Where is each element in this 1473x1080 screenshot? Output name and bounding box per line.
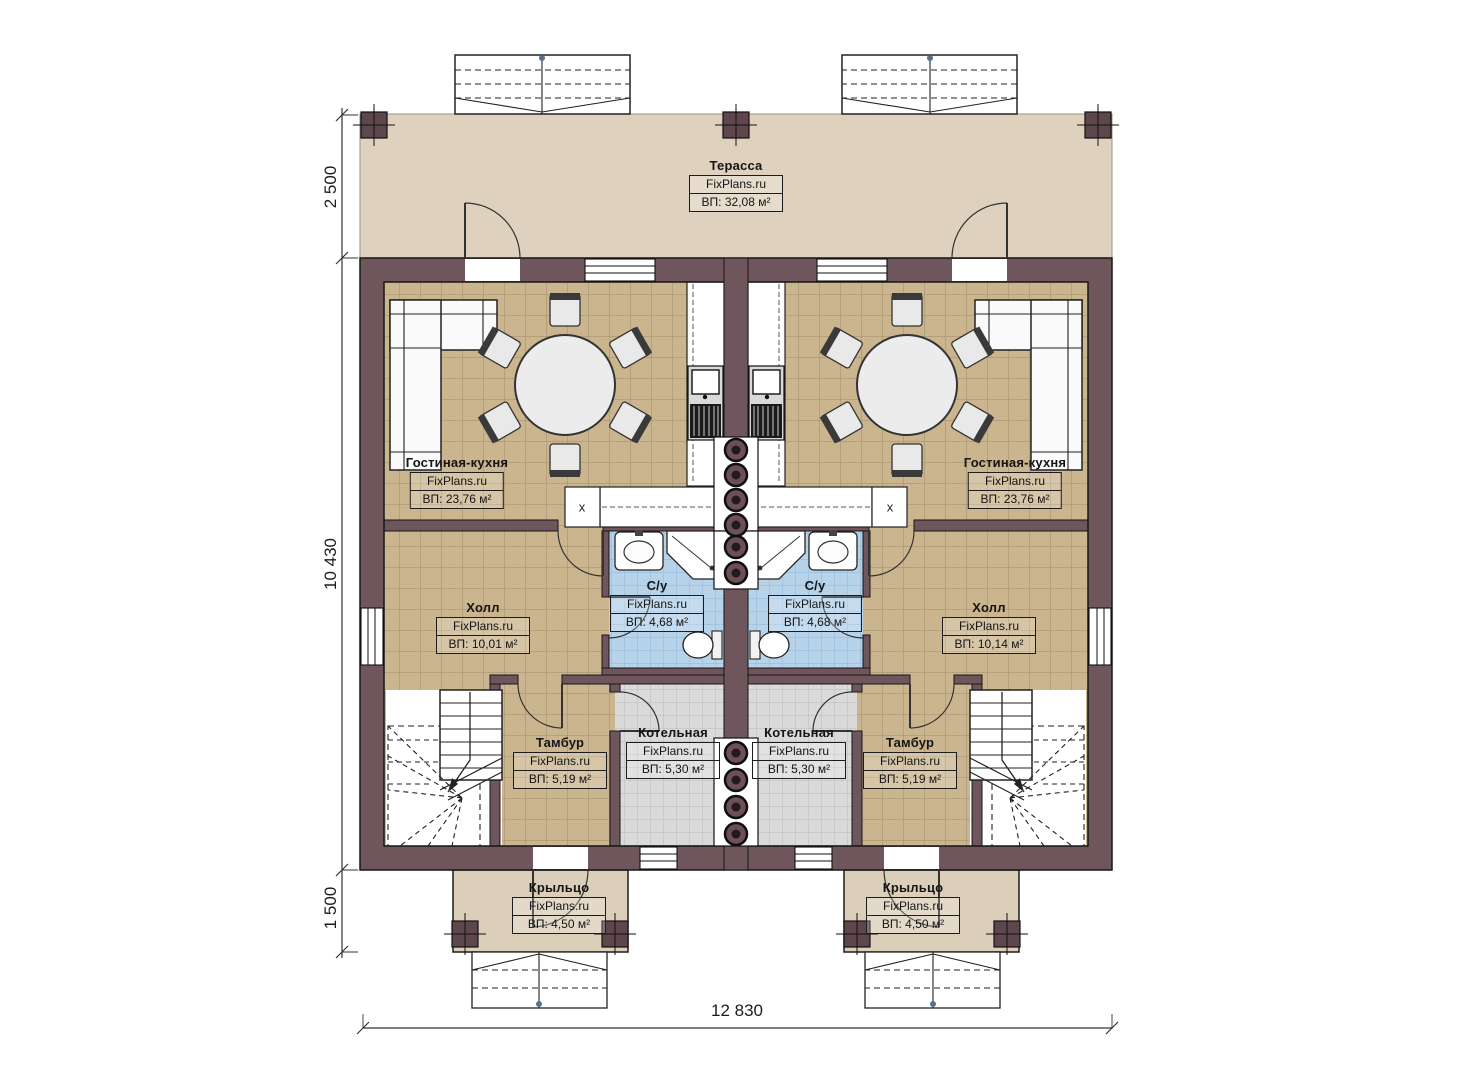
room-name: Гостиная-кухня [406, 455, 508, 470]
room-label-vestibule-right: Тамбур FixPlans.ru ВП: 5,19 м² [863, 735, 957, 789]
room-label-bath-left: С/у FixPlans.ru ВП: 4,68 м² [610, 578, 704, 632]
brand-watermark: FixPlans.ru [864, 753, 956, 771]
room-name: Гостиная-кухня [964, 455, 1066, 470]
room-name: Холл [436, 600, 530, 615]
room-name: Тамбур [513, 735, 607, 750]
floor-plan-page: Терасса FixPlans.ru ВП: 32,08 м² Гостина… [0, 0, 1473, 1080]
room-label-hall-right: Холл FixPlans.ru ВП: 10,14 м² [942, 600, 1036, 654]
room-area: ВП: 5,30 м² [627, 761, 719, 778]
room-name: Крыльцо [866, 880, 960, 895]
hob-symbol-left: х [579, 500, 586, 515]
dim-porch-depth: 1 500 [321, 887, 341, 930]
brand-watermark: FixPlans.ru [411, 473, 503, 491]
room-label-porch-right: Крыльцо FixPlans.ru ВП: 4,50 м² [866, 880, 960, 934]
brand-watermark: FixPlans.ru [753, 743, 845, 761]
room-name: С/у [610, 578, 704, 593]
dim-total-width: 12 830 [711, 1001, 763, 1021]
brand-watermark: FixPlans.ru [769, 596, 861, 614]
brand-watermark: FixPlans.ru [513, 898, 605, 916]
room-name: Крыльцо [512, 880, 606, 895]
brand-watermark: FixPlans.ru [627, 743, 719, 761]
hob-symbol-right: х [887, 500, 894, 515]
room-name: Тамбур [863, 735, 957, 750]
room-area: ВП: 10,01 м² [437, 636, 529, 653]
brand-watermark: FixPlans.ru [437, 618, 529, 636]
room-area: ВП: 4,50 м² [513, 916, 605, 933]
room-area: ВП: 10,14 м² [943, 636, 1035, 653]
room-label-boiler-left: Котельная FixPlans.ru ВП: 5,30 м² [626, 725, 720, 779]
room-label-terrace: Терасса FixPlans.ru ВП: 32,08 м² [689, 158, 783, 212]
room-name: Котельная [752, 725, 846, 740]
room-label-porch-left: Крыльцо FixPlans.ru ВП: 4,50 м² [512, 880, 606, 934]
room-name: Котельная [626, 725, 720, 740]
room-label-boiler-right: Котельная FixPlans.ru ВП: 5,30 м² [752, 725, 846, 779]
dim-house-depth: 10 430 [321, 538, 341, 590]
room-label-hall-left: Холл FixPlans.ru ВП: 10,01 м² [436, 600, 530, 654]
room-area: ВП: 23,76 м² [411, 491, 503, 508]
brand-watermark: FixPlans.ru [611, 596, 703, 614]
room-area: ВП: 4,50 м² [867, 916, 959, 933]
room-name: Терасса [689, 158, 783, 173]
room-area: ВП: 5,19 м² [864, 771, 956, 788]
room-label-living-right: Гостиная-кухня FixPlans.ru ВП: 23,76 м² [964, 455, 1066, 509]
room-name: С/у [768, 578, 862, 593]
brand-watermark: FixPlans.ru [943, 618, 1035, 636]
room-area: ВП: 23,76 м² [969, 491, 1061, 508]
room-label-living-left: Гостиная-кухня FixPlans.ru ВП: 23,76 м² [406, 455, 508, 509]
room-label-vestibule-left: Тамбур FixPlans.ru ВП: 5,19 м² [513, 735, 607, 789]
room-area: ВП: 4,68 м² [611, 614, 703, 631]
room-area: ВП: 5,30 м² [753, 761, 845, 778]
room-label-bath-right: С/у FixPlans.ru ВП: 4,68 м² [768, 578, 862, 632]
room-area: ВП: 32,08 м² [690, 194, 782, 211]
brand-watermark: FixPlans.ru [690, 176, 782, 194]
brand-watermark: FixPlans.ru [969, 473, 1061, 491]
room-area: ВП: 4,68 м² [769, 614, 861, 631]
brand-watermark: FixPlans.ru [867, 898, 959, 916]
brand-watermark: FixPlans.ru [514, 753, 606, 771]
room-name: Холл [942, 600, 1036, 615]
room-area: ВП: 5,19 м² [514, 771, 606, 788]
dim-terrace-depth: 2 500 [321, 166, 341, 209]
